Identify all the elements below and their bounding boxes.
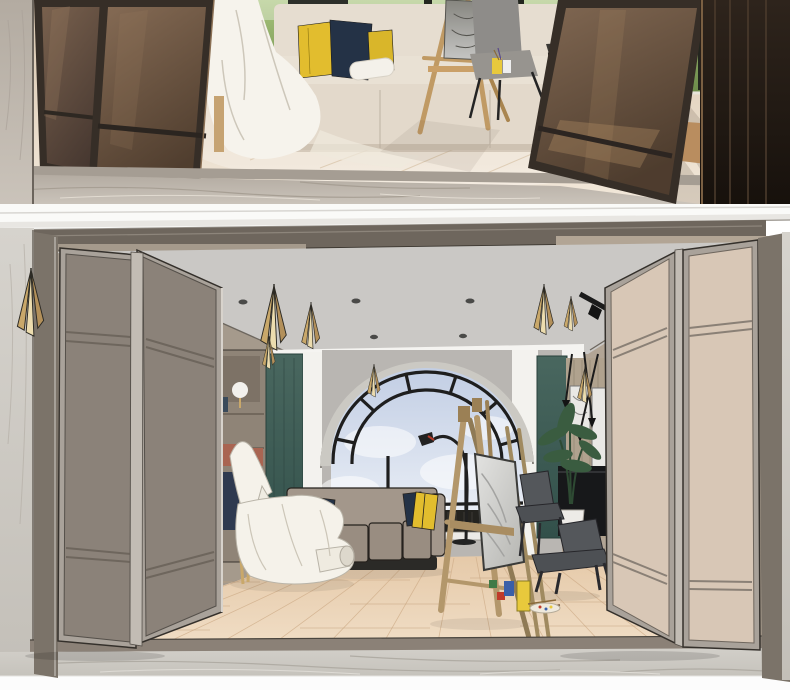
- right-folding-door-panels: [605, 240, 760, 650]
- easel-leg-under-cloth: [214, 96, 224, 152]
- photo-panel: [0, 0, 790, 204]
- stacked-dark-door-panels: [700, 0, 790, 204]
- render-panel: [0, 204, 790, 690]
- composite-image: [0, 0, 790, 690]
- right-marble-edge: [782, 232, 790, 680]
- hinge-strip: [130, 252, 143, 646]
- left-marble-wall: [0, 0, 34, 204]
- sphere-table-lamp: [232, 382, 248, 398]
- marble-canvas: [475, 454, 524, 570]
- left-folding-door-panels: [58, 248, 222, 648]
- render-showroom-image: [0, 204, 790, 690]
- photo-showroom-image: [0, 0, 790, 204]
- bottom-white-strip: [0, 676, 790, 690]
- hinge-strip: [675, 249, 683, 647]
